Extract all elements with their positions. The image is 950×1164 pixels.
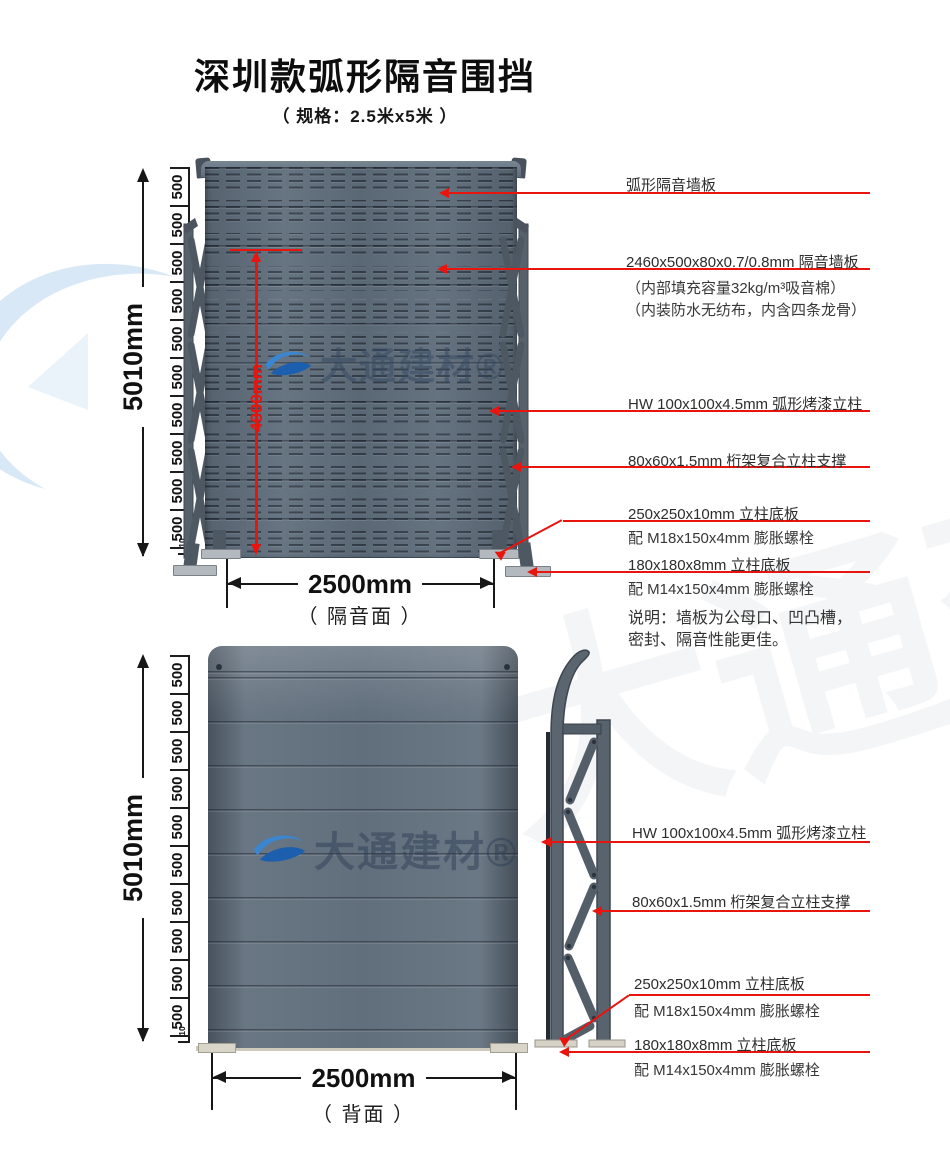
- callout-label-panel-spec: 2460x500x80x0.7/0.8mm 隔音墙板: [626, 251, 859, 272]
- back-height-label: 5010mm: [118, 778, 148, 918]
- back-callout-sub-base180-bolt: 配 M14x150x4mm 膨胀螺栓: [634, 1059, 820, 1080]
- callout-sub-base180-bolt: 配 M14x150x4mm 膨胀螺栓: [628, 578, 814, 599]
- page-title: 深圳款弧形隔音围挡: [140, 48, 590, 100]
- front-height-arrow-down-icon: [137, 543, 149, 557]
- background-swoosh-icon: [0, 235, 180, 505]
- front-left-inner-plate: [201, 549, 241, 559]
- callout-arrow-icon: [437, 264, 447, 274]
- back-width-tick-right: [515, 1048, 517, 1110]
- scale-segment-label: 500: [171, 770, 185, 808]
- callout-arrow-icon: [489, 406, 499, 416]
- callout-arrow-icon: [439, 188, 449, 198]
- front-inner-dim-arrow-up-icon: [251, 251, 261, 262]
- callout-arrow-icon: [527, 567, 537, 577]
- callout-sub-panel-liner: （内装防水无纺布，内含四条龙骨）: [626, 299, 866, 320]
- back-bolt-right: [504, 664, 510, 670]
- infographic-page: 大通建材® 深圳款弧形隔音围挡 （ 规格：2.5米x5米 ） 5010mm 50…: [0, 0, 950, 1164]
- note-line-1: 说明：墙板为公母口、凹凸槽，: [628, 604, 852, 628]
- callout-label-wall-panel: 弧形隔音墙板: [626, 174, 716, 195]
- back-callout-label-base250: 250x250x10mm 立柱底板: [634, 973, 805, 994]
- back-side-profile: [534, 640, 629, 1055]
- front-left-outer-plate: [173, 565, 217, 576]
- scale-segment-label: 500: [171, 808, 185, 846]
- callout-arrow-icon: [541, 837, 551, 847]
- back-width-label: 2500mm: [212, 1063, 515, 1094]
- callout-label-truss: 80x60x1.5mm 桁架复合立柱支撑: [628, 450, 846, 471]
- scale-segment-label: 500: [171, 884, 185, 922]
- back-callout-label-truss: 80x60x1.5mm 桁架复合立柱支撑: [632, 891, 850, 912]
- callout-label-post: HW 100x100x4.5mm 弧形烤漆立柱: [628, 393, 862, 414]
- callout-label-base180: 180x180x8mm 立柱底板: [628, 554, 791, 575]
- scale-segment-label: 500: [171, 168, 185, 206]
- callout-sub-panel-fill: （内部填充容量32kg/m³吸音棉）: [626, 277, 845, 298]
- callout-label-base250: 250x250x10mm 立柱底板: [628, 503, 799, 524]
- callout-arrow-icon: [559, 1047, 569, 1057]
- back-height-arrow-down-icon: [137, 1028, 149, 1042]
- front-left-outer-foot: [183, 542, 199, 568]
- back-callout-label-post: HW 100x100x4.5mm 弧形烤漆立柱: [632, 822, 866, 843]
- page-subtitle: （ 规格：2.5米x5米 ）: [140, 102, 590, 127]
- callout-sub-base250-bolt: 配 M18x150x4mm 膨胀螺栓: [628, 527, 814, 548]
- callout-arrow-icon: [592, 906, 602, 916]
- scale-segment-label: 500: [171, 922, 185, 960]
- front-view-caption: （ 隔音面 ）: [227, 600, 493, 629]
- callout-arrow-icon: [511, 462, 521, 472]
- front-height-arrow-up-icon: [137, 168, 149, 182]
- scale-line: [188, 656, 190, 1042]
- front-inner-dim-top-tick: [230, 249, 302, 251]
- scale-segment-label: 500: [171, 656, 185, 694]
- front-inner-dim-arrow-down-icon: [251, 544, 261, 555]
- front-right-outer-foot: [517, 542, 533, 568]
- back-height-arrow-up-icon: [137, 654, 149, 668]
- back-solid-panel: [208, 646, 518, 1048]
- back-base-plate-right: [490, 1043, 528, 1053]
- note-line-2: 密封、隔音性能更佳。: [628, 626, 788, 650]
- back-tick-scale: 50050050050050050050050050050010: [158, 656, 190, 1042]
- scale-segment-label: 500: [171, 846, 185, 884]
- back-view-caption: （ 背面 ）: [212, 1098, 515, 1127]
- scale-segment-label: 500: [171, 694, 185, 732]
- front-inner-height-label: 4000mm: [247, 353, 267, 443]
- scale-segment-label: 500: [171, 732, 185, 770]
- scale-bottom-segment-label: 10: [177, 1012, 187, 1050]
- back-callout-sub-base250-bolt: 配 M18x150x4mm 膨胀螺栓: [634, 1000, 820, 1021]
- back-bolt-left: [216, 664, 222, 670]
- scale-segment-label: 500: [171, 960, 185, 998]
- front-right-truss: [499, 212, 529, 562]
- front-height-label: 5010mm: [118, 287, 148, 427]
- front-width-tick-right: [493, 556, 495, 608]
- front-width-label: 2500mm: [227, 569, 493, 600]
- back-callout-line-base250: [629, 994, 870, 996]
- back-callout-label-base180: 180x180x8mm 立柱底板: [634, 1034, 797, 1055]
- back-base-plate-left: [198, 1043, 236, 1053]
- front-left-inner-foot: [213, 530, 226, 551]
